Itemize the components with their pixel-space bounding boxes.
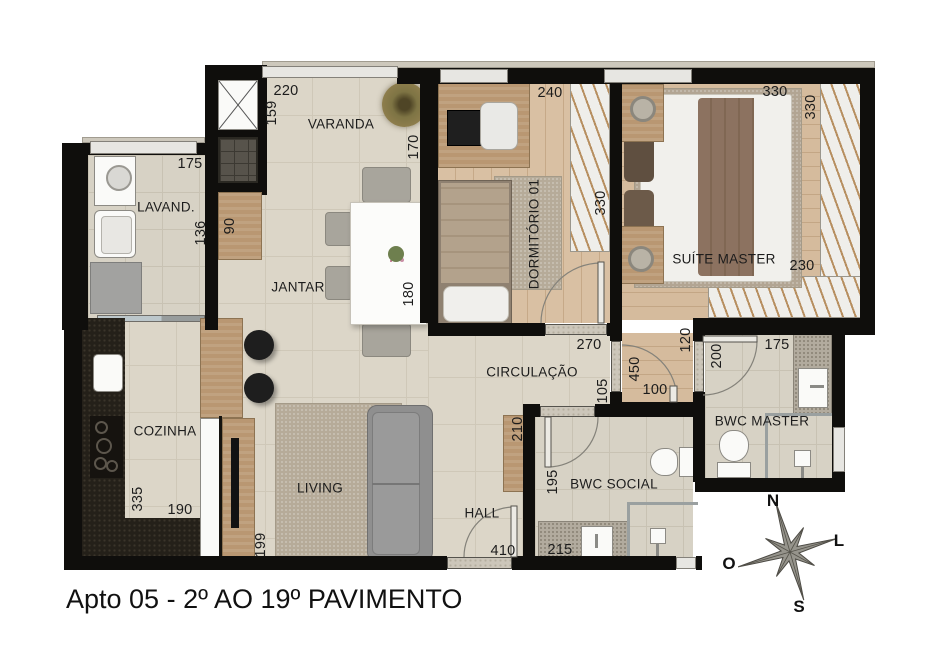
door-arc — [541, 263, 601, 323]
floor-plan: N L O S VARANDA LAVAND. JANTAR DORMITÓRI… — [0, 0, 946, 646]
dim-suite-hall-len: 450 — [627, 356, 643, 381]
plan-title: Apto 05 - 2º AO 19º PAVIMENTO — [66, 584, 462, 615]
dim-circ-width: 105 — [595, 378, 611, 403]
door-arc — [548, 417, 598, 467]
dim-hall-width: 410 — [490, 543, 515, 559]
dim-suite-width: 330 — [762, 84, 787, 100]
dim-suite-door: 120 — [678, 327, 694, 352]
compass-north: N — [767, 491, 779, 511]
dim-sideboard: 210 — [510, 416, 526, 441]
door-leaf — [545, 417, 551, 467]
room-label-lavanderia: LAVAND. — [137, 200, 195, 215]
dim-bwcm-length: 200 — [709, 343, 725, 368]
door-leaf — [598, 262, 604, 323]
compass-east: L — [834, 531, 844, 551]
room-label-circulacao: CIRCULAÇÃO — [486, 365, 578, 380]
room-label-bwc-social: BWC SOCIAL — [570, 477, 658, 492]
room-label-bwc-master: BWC MASTER — [715, 414, 810, 429]
compass-rose — [728, 488, 852, 616]
dim-varanda-width: 220 — [273, 83, 298, 99]
room-label-cozinha: COZINHA — [134, 424, 197, 439]
room-label-jantar: JANTAR — [271, 280, 324, 295]
compass-south: S — [793, 597, 804, 617]
door-leaf — [703, 336, 757, 342]
room-label-hall: HALL — [465, 506, 500, 521]
dim-dorm-length: 330 — [593, 190, 609, 215]
dim-suite-length: 330 — [803, 94, 819, 119]
room-label-dormitorio: DORMITÓRIO 01 — [527, 179, 542, 289]
dim-varanda-depth: 159 — [264, 100, 280, 125]
dim-dorm-width: 240 — [537, 85, 562, 101]
room-label-suite: SUÍTE MASTER — [672, 252, 775, 267]
dim-suite-closet: 230 — [789, 258, 814, 274]
dim-bwcm-width: 175 — [764, 337, 789, 353]
door-leaf — [670, 386, 677, 402]
compass-west: O — [722, 554, 735, 574]
room-label-living: LIVING — [297, 481, 343, 496]
dim-varanda-depth-r: 170 — [406, 134, 422, 159]
dim-dorm-door: 270 — [576, 337, 601, 353]
dim-bwcs-width: 215 — [547, 542, 572, 558]
dim-suite-hall-wid: 100 — [642, 382, 667, 398]
dim-hall-cabinet: 90 — [222, 218, 238, 235]
dim-kitchen-length: 335 — [130, 486, 146, 511]
dim-table-length: 180 — [401, 281, 417, 306]
dim-lavand-depth: 136 — [193, 220, 209, 245]
dim-lavand-width: 175 — [177, 156, 202, 172]
dim-kitchen-width: 190 — [167, 502, 192, 518]
room-label-varanda: VARANDA — [308, 117, 374, 132]
dim-bwcs-length: 195 — [545, 469, 561, 494]
dim-tv-panel: 199 — [253, 532, 269, 557]
